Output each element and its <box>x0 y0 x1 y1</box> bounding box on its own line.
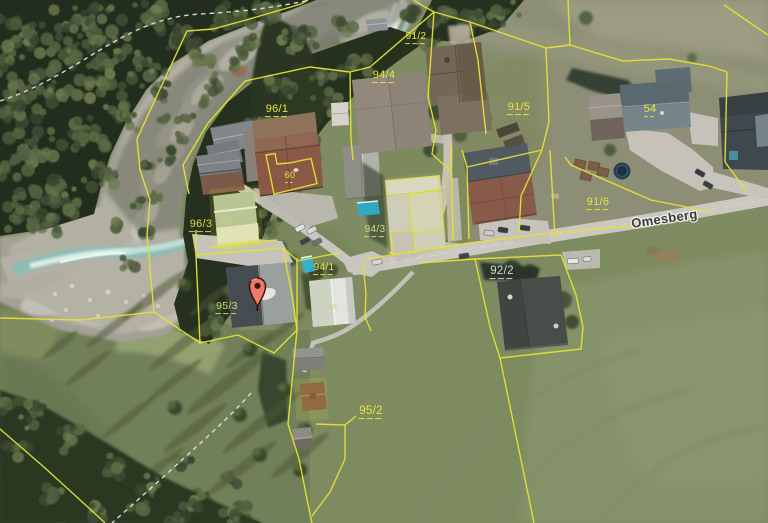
svg-text:91/5: 91/5 <box>508 101 531 113</box>
svg-text:91/6: 91/6 <box>587 196 610 208</box>
svg-text:95/3: 95/3 <box>216 300 238 312</box>
svg-text:91/2: 91/2 <box>406 31 427 42</box>
svg-text:94/4: 94/4 <box>373 69 396 81</box>
svg-text:60: 60 <box>285 170 296 180</box>
svg-text:94/3: 94/3 <box>365 224 386 235</box>
svg-text:95/2: 95/2 <box>359 405 383 417</box>
svg-text:54: 54 <box>644 103 657 115</box>
svg-text:96/1: 96/1 <box>266 103 289 115</box>
svg-text:92/2: 92/2 <box>490 265 514 277</box>
svg-text:96/3: 96/3 <box>190 218 213 230</box>
svg-text:56: 56 <box>329 304 337 311</box>
svg-text:94/1: 94/1 <box>314 262 335 273</box>
